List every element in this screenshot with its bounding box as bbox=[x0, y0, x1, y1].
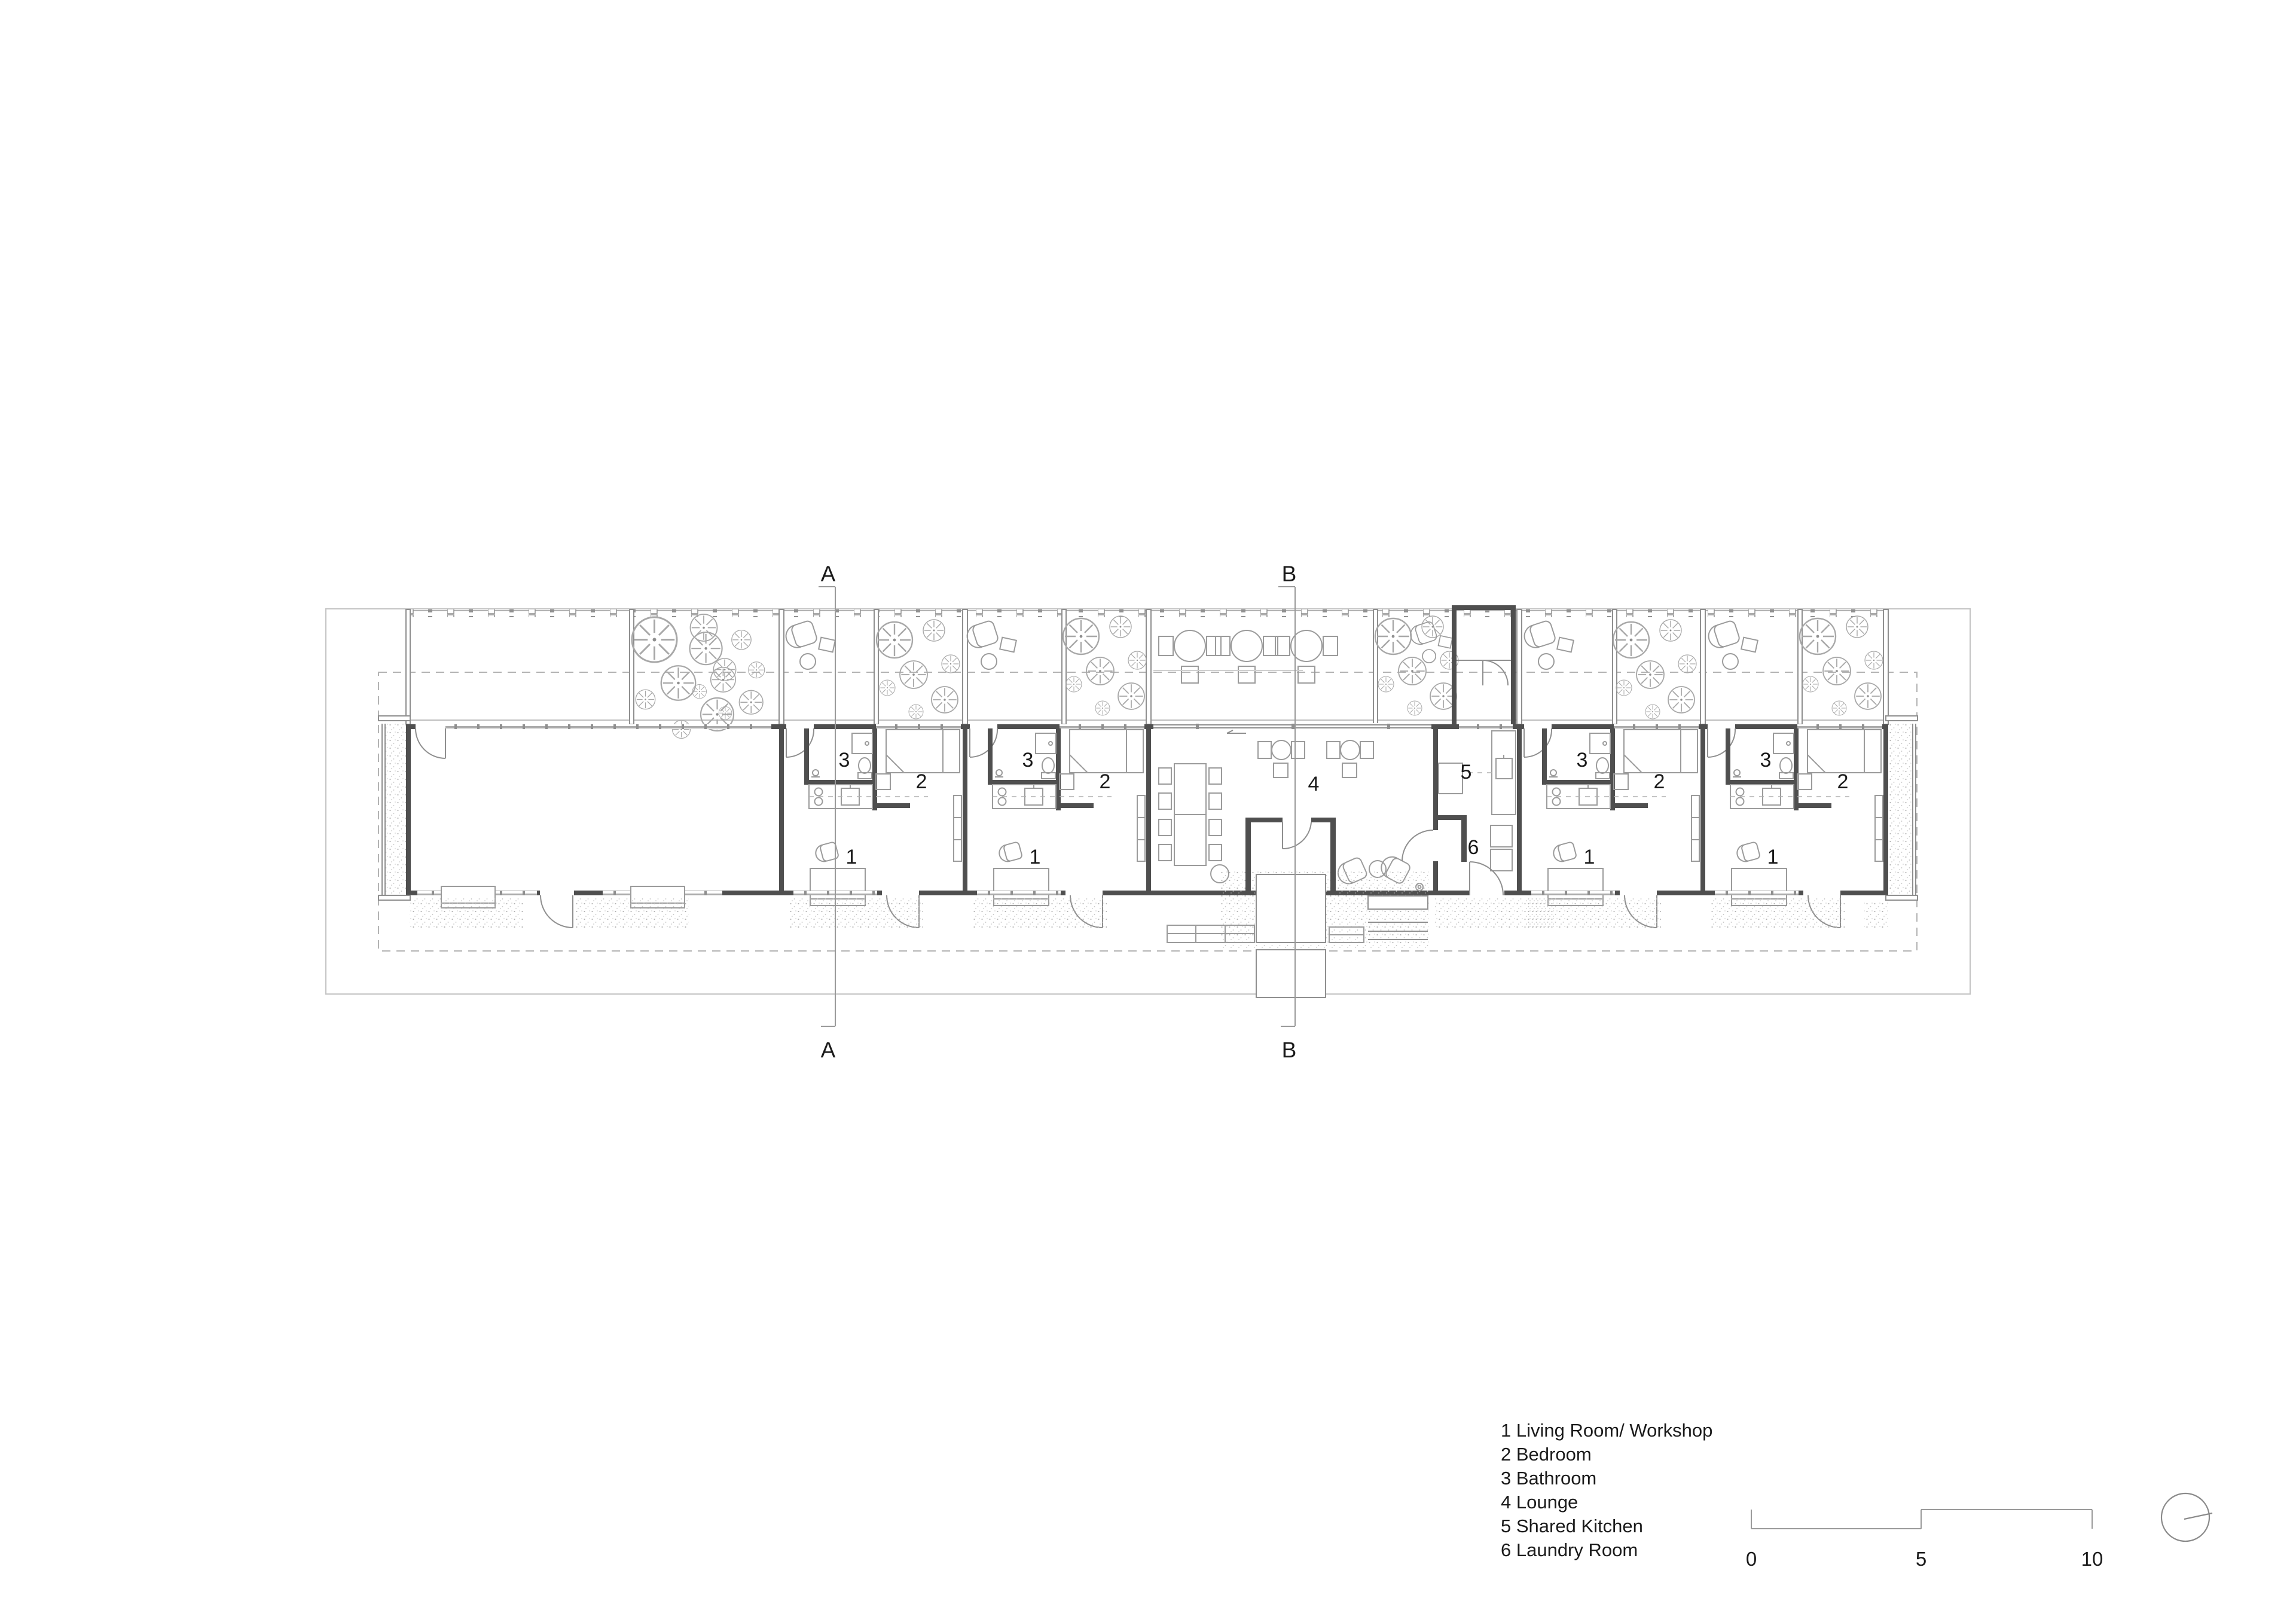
legend-item-laundry: 6 Laundry Room bbox=[1501, 1538, 1712, 1562]
room-label-bedroom-u4: 2 bbox=[1837, 770, 1849, 793]
unit-2 bbox=[970, 722, 1145, 928]
legend-item-lounge: 4 Lounge bbox=[1501, 1490, 1712, 1514]
scale-label-10: 10 bbox=[2081, 1548, 2103, 1570]
scale-label-5: 5 bbox=[1916, 1548, 1926, 1570]
garden-patio-furniture bbox=[783, 620, 1758, 669]
room-label-bathroom-u2: 3 bbox=[1022, 749, 1034, 772]
legend-item-bedroom: 2 Bedroom bbox=[1501, 1443, 1712, 1466]
scale-label-0: 0 bbox=[1746, 1548, 1757, 1570]
back-entry-protrusion bbox=[1452, 605, 1516, 724]
room-label-lounge: 4 bbox=[1308, 773, 1320, 795]
room-label-living-u1: 1 bbox=[846, 846, 857, 868]
room-label-bedroom-u3: 2 bbox=[1654, 770, 1665, 793]
workshop-room bbox=[410, 722, 771, 928]
room-label-living-u3: 1 bbox=[1584, 846, 1595, 868]
unit-1 bbox=[786, 722, 961, 928]
room-label-bathroom-u1: 3 bbox=[839, 749, 850, 772]
section-marker-a-bottom: A bbox=[821, 1038, 836, 1062]
room-label-bedroom-u1: 2 bbox=[916, 770, 927, 793]
legend-item-kitchen: 5 Shared Kitchen bbox=[1501, 1514, 1712, 1538]
section-marker-a-top: A bbox=[821, 562, 836, 586]
room-label-laundry: 6 bbox=[1468, 836, 1479, 859]
legend-item-bathroom: 3 Bathroom bbox=[1501, 1466, 1712, 1490]
floor-plan-drawing: A A B B 3 2 1 3 2 1 4 5 6 3 2 1 3 2 1 0 … bbox=[0, 0, 2296, 1622]
unit-3 bbox=[1524, 722, 1699, 928]
lounge-terrace-furniture bbox=[1153, 630, 1338, 683]
section-marker-b-bottom: B bbox=[1282, 1038, 1297, 1062]
room-label-living-u4: 1 bbox=[1767, 846, 1779, 868]
room-label-bedroom-u2: 2 bbox=[1100, 770, 1111, 793]
scale-bar bbox=[1751, 1510, 2092, 1529]
room-label-kitchen: 5 bbox=[1461, 761, 1472, 783]
room-label-bathroom-u3: 3 bbox=[1577, 749, 1588, 772]
lounge-room bbox=[1153, 723, 1431, 891]
unit-4 bbox=[1708, 722, 1883, 928]
room-label-bathroom-u4: 3 bbox=[1760, 749, 1772, 772]
garden-divider-walls bbox=[406, 609, 1888, 724]
north-indicator-icon bbox=[2161, 1493, 2212, 1541]
legend-item-living: 1 Living Room/ Workshop bbox=[1501, 1419, 1712, 1443]
section-marker-b-top: B bbox=[1282, 562, 1297, 586]
west-porch bbox=[378, 716, 410, 900]
plan-sheet: A A B B 3 2 1 3 2 1 4 5 6 3 2 1 3 2 1 0 … bbox=[0, 0, 2296, 1622]
room-legend: 1 Living Room/ Workshop 2 Bedroom 3 Bath… bbox=[1501, 1419, 1712, 1562]
room-label-living-u2: 1 bbox=[1030, 846, 1041, 868]
